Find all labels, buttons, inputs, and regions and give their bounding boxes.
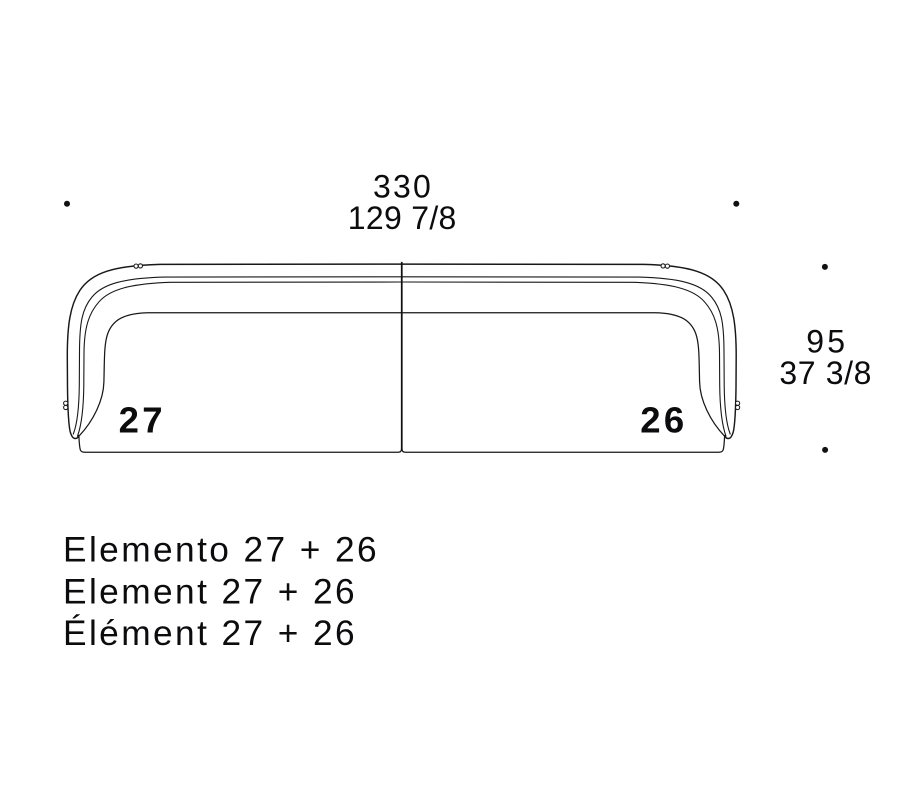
svg-text:95: 95	[806, 324, 848, 360]
svg-text:27: 27	[119, 399, 166, 440]
svg-text:Elemento 27 + 26: Elemento 27 + 26	[63, 531, 379, 570]
svg-text:Élément 27 + 26: Élément 27 + 26	[63, 614, 357, 653]
svg-text:26: 26	[640, 400, 687, 441]
svg-text:37 3/8: 37 3/8	[779, 355, 872, 391]
svg-text:129 7/8: 129 7/8	[348, 200, 457, 236]
svg-text:330: 330	[373, 168, 433, 204]
svg-text:Element 27 + 26: Element 27 + 26	[63, 573, 357, 612]
